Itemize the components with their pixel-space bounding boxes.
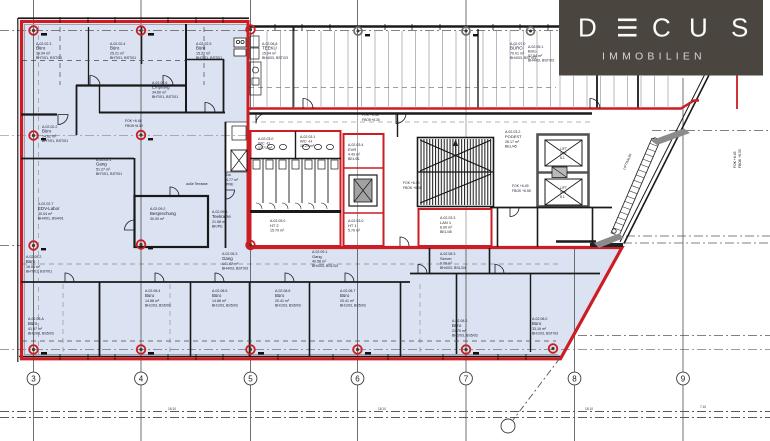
- svg-text:BH4/03, BSL/34: BH4/03, BSL/34: [440, 266, 466, 270]
- svg-text:Büro: Büro: [212, 293, 222, 298]
- svg-text:HT 1: HT 1: [348, 223, 357, 228]
- svg-text:FOK +8.45: FOK +8.45: [733, 151, 737, 168]
- svg-text:Büro: Büro: [452, 323, 462, 328]
- svg-text:Gang: Gang: [312, 254, 322, 259]
- svg-text:BH1/03, BS5/03: BH1/03, BS5/03: [452, 334, 478, 338]
- svg-text:BH1/03, BS5/03: BH1/03, BS5/03: [340, 304, 366, 308]
- svg-text:141.07 m²: 141.07 m²: [222, 262, 239, 266]
- svg-text:FBOK +6.55: FBOK +6.55: [512, 189, 531, 193]
- svg-text:7: 7: [464, 375, 469, 384]
- svg-text:FBOK +8.55: FBOK +8.55: [738, 149, 742, 168]
- svg-text:STY: STY: [560, 152, 567, 156]
- svg-text:15.24 m²: 15.24 m²: [300, 144, 315, 148]
- svg-text:FBOK+6.30: FBOK+6.30: [362, 118, 380, 122]
- svg-text:4.77 m²: 4.77 m²: [226, 178, 239, 182]
- svg-text:30.00 m²: 30.00 m²: [150, 217, 165, 221]
- svg-text:BEL/45: BEL/45: [505, 145, 517, 149]
- svg-text:18.10: 18.10: [168, 407, 176, 411]
- svg-text:8: 8: [572, 375, 577, 384]
- svg-text:BEL/01: BEL/01: [348, 157, 360, 161]
- svg-text:5.79 m²: 5.79 m²: [348, 229, 361, 233]
- svg-text:LAN 1: LAN 1: [440, 220, 452, 225]
- svg-text:Gang: Gang: [96, 162, 107, 167]
- svg-text:LIFT: LIFT: [560, 147, 567, 151]
- svg-text:BH1/03, BS5/03: BH1/03, BS5/03: [212, 304, 238, 308]
- svg-text:Büro: Büro: [340, 293, 350, 298]
- svg-text:34.60 m²: 34.60 m²: [152, 91, 167, 95]
- svg-text:FOK +6.48: FOK +6.48: [125, 119, 142, 123]
- svg-text:BHT/01, BST/01: BHT/01, BST/01: [26, 270, 52, 274]
- svg-text:Büro: Büro: [42, 129, 52, 134]
- svg-text:Büro: Büro: [26, 259, 36, 264]
- svg-text:15.04 m²: 15.04 m²: [262, 52, 277, 56]
- svg-text:4: 4: [139, 375, 144, 384]
- svg-text:33.16 m²: 33.16 m²: [532, 327, 547, 331]
- svg-text:Teeküche: Teeküche: [212, 214, 231, 219]
- svg-text:PRE: PRE: [226, 183, 234, 187]
- svg-text:9: 9: [681, 375, 686, 384]
- svg-text:Besprechung: Besprechung: [150, 211, 176, 216]
- svg-text:BHT/01, BST/01: BHT/01, BST/01: [110, 56, 136, 60]
- svg-text:4.43 m²: 4.43 m²: [348, 153, 361, 157]
- svg-text:Büro: Büro: [196, 46, 206, 51]
- svg-text:40.58 m²: 40.58 m²: [312, 260, 327, 264]
- svg-text:14.82 m²: 14.82 m²: [42, 135, 57, 139]
- svg-text:Büro: Büro: [110, 46, 120, 51]
- svg-text:Büro: Büro: [528, 49, 537, 54]
- svg-text:BHT/01, BST/01: BHT/01, BST/01: [42, 139, 68, 143]
- svg-text:EVR: EVR: [348, 147, 356, 152]
- svg-text:FBOK+6.30: FBOK+6.30: [125, 124, 143, 128]
- svg-text:8.1: 8.1: [560, 156, 565, 160]
- svg-text:15.79 m²: 15.79 m²: [270, 229, 285, 233]
- svg-text:BHT/01, BST/01: BHT/01, BST/01: [36, 56, 62, 60]
- svg-text:Büro: Büro: [28, 321, 38, 326]
- svg-text:C: C: [652, 13, 671, 43]
- svg-text:6: 6: [355, 375, 360, 384]
- svg-text:BK/PE: BK/PE: [212, 225, 223, 229]
- svg-text:21.70 m²: 21.70 m²: [452, 329, 467, 333]
- svg-text:BEL/45: BEL/45: [440, 230, 452, 234]
- svg-text:9.00 m²: 9.00 m²: [440, 262, 453, 266]
- svg-text:51.27 m²: 51.27 m²: [96, 168, 111, 172]
- svg-text:Büro: Büro: [36, 46, 46, 51]
- svg-text:20.41 m²: 20.41 m²: [275, 299, 290, 303]
- svg-text:LIFT: LIFT: [560, 186, 567, 190]
- svg-text:EDV-Labor: EDV-Labor: [38, 206, 60, 211]
- svg-text:14.88 m²: 14.88 m²: [212, 299, 227, 303]
- svg-text:BH4/03, BST/03: BH4/03, BST/03: [222, 267, 248, 271]
- svg-text:BHT/01, BST/01: BHT/01, BST/01: [152, 95, 178, 99]
- svg-text:13.71 m²: 13.71 m²: [258, 146, 273, 150]
- svg-text:BH4/03, BST/03: BH4/03, BST/03: [262, 56, 288, 60]
- svg-text:auße Terrasse: auße Terrasse: [186, 182, 208, 186]
- svg-text:HT 2: HT 2: [270, 223, 279, 228]
- svg-text:Server: Server: [440, 256, 452, 261]
- svg-text:15.37 m²: 15.37 m²: [196, 52, 211, 56]
- svg-text:70.01 m²: 70.01 m²: [510, 52, 525, 56]
- svg-text:18.10: 18.10: [585, 407, 593, 411]
- svg-text:Empfang: Empfang: [152, 85, 170, 90]
- svg-text:30.04 m²: 30.04 m²: [36, 52, 51, 56]
- svg-text:FBOK +6.55: FBOK +6.55: [403, 186, 422, 190]
- svg-text:25.21 m²: 25.21 m²: [110, 52, 125, 56]
- svg-text:BH1/03, BS5/03: BH1/03, BS5/03: [28, 332, 54, 336]
- svg-text:26.17 m²: 26.17 m²: [505, 140, 520, 144]
- svg-text:8.1: 8.1: [560, 195, 565, 199]
- svg-text:BH4/03, BSL/34: BH4/03, BSL/34: [312, 264, 338, 268]
- svg-text:7.10: 7.10: [700, 405, 706, 409]
- svg-text:WC -H: WC -H: [300, 139, 312, 144]
- svg-text:3: 3: [31, 375, 36, 384]
- svg-text:5: 5: [248, 375, 253, 384]
- svg-text:Büro: Büro: [145, 293, 155, 298]
- svg-text:14.88 m²: 14.88 m²: [145, 299, 160, 303]
- svg-text:FOK +6.49: FOK +6.49: [512, 184, 529, 188]
- svg-text:57.84 m²: 57.84 m²: [528, 54, 543, 58]
- svg-text:41.97 m²: 41.97 m²: [28, 327, 43, 331]
- svg-text:FOK +6.48: FOK +6.48: [362, 113, 379, 117]
- svg-text:U: U: [689, 13, 708, 43]
- svg-text:BH1/03, BST/03: BH1/03, BST/03: [532, 332, 558, 336]
- svg-text:Da: Da: [226, 173, 231, 177]
- svg-text:BÜRO: BÜRO: [510, 46, 523, 51]
- svg-text:PODEST: PODEST: [505, 134, 522, 139]
- svg-text:D: D: [578, 13, 597, 43]
- svg-text:8.90 m²: 8.90 m²: [440, 226, 453, 230]
- svg-text:Gang: Gang: [222, 256, 233, 261]
- svg-text:FOK +6.49: FOK +6.49: [403, 181, 420, 185]
- svg-text:Büro: Büro: [532, 321, 542, 326]
- svg-text:18.10: 18.10: [378, 407, 386, 411]
- svg-text:TEEKÜ: TEEKÜ: [262, 46, 277, 51]
- svg-text:20.41 m²: 20.41 m²: [340, 299, 355, 303]
- svg-text:BH1/03, BS5/03: BH1/03, BS5/03: [275, 304, 301, 308]
- svg-text:16.04 m²: 16.04 m²: [26, 265, 41, 269]
- svg-text:21.58 m²: 21.58 m²: [212, 220, 227, 224]
- svg-text:BHT/01, BST/01: BHT/01, BST/01: [196, 56, 222, 60]
- svg-text:BHT/01, BST/01: BHT/01, BST/01: [96, 172, 122, 176]
- svg-text:Büro: Büro: [275, 293, 285, 298]
- svg-text:BH1/03, BS5/03: BH1/03, BS5/03: [145, 304, 171, 308]
- svg-text:30.04 m²: 30.04 m²: [38, 212, 53, 216]
- svg-text:BH4/03, BST/03: BH4/03, BST/03: [528, 59, 554, 63]
- svg-text:BH4/01, BS4/01: BH4/01, BS4/01: [38, 217, 64, 221]
- svg-text:S: S: [731, 13, 748, 43]
- svg-text:STY: STY: [560, 191, 567, 195]
- svg-text:IMMOBILIEN: IMMOBILIEN: [602, 51, 706, 63]
- svg-text:WC -D: WC -D: [258, 141, 270, 146]
